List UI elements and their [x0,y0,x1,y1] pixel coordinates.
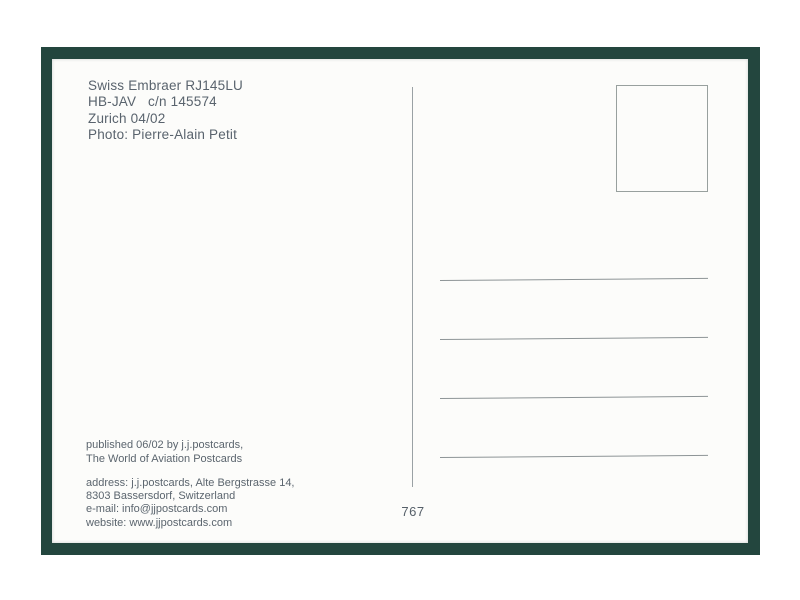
divider-line [412,87,413,487]
postcard-back: Swiss Embraer RJ145LU HB-JAV c/n 145574 … [52,59,748,543]
photo-caption: Swiss Embraer RJ145LU HB-JAV c/n 145574 … [88,78,243,144]
address-ruling-line [440,396,708,399]
caption-registration: HB-JAV c/n 145574 [88,94,243,110]
address-ruling-line [440,337,708,340]
contact-website-line: website: www.jjpostcards.com [86,517,295,530]
caption-aircraft-type: Swiss Embraer RJ145LU [88,78,243,94]
publisher-line: The World of Aviation Postcards [86,453,243,467]
contact-address-line: address: j.j.postcards, Alte Bergstrasse… [86,477,295,490]
scanned-postcard-page: Swiss Embraer RJ145LU HB-JAV c/n 145574 … [0,0,800,600]
caption-photographer: Photo: Pierre-Alain Petit [88,127,243,143]
caption-location-date: Zurich 04/02 [88,111,243,127]
contact-city-line: 8303 Bassersdorf, Switzerland [86,490,295,503]
address-ruling-line [440,278,708,281]
stamp-box [616,85,708,192]
contact-email-line: e-mail: info@jjpostcards.com [86,503,295,516]
publisher-line: published 06/02 by j.j.postcards, [86,439,243,453]
publisher-info: published 06/02 by j.j.postcards, The Wo… [86,439,243,466]
address-ruling-line [440,455,708,458]
card-number: 767 [387,504,439,519]
publisher-contact-info: address: j.j.postcards, Alte Bergstrasse… [86,477,295,530]
